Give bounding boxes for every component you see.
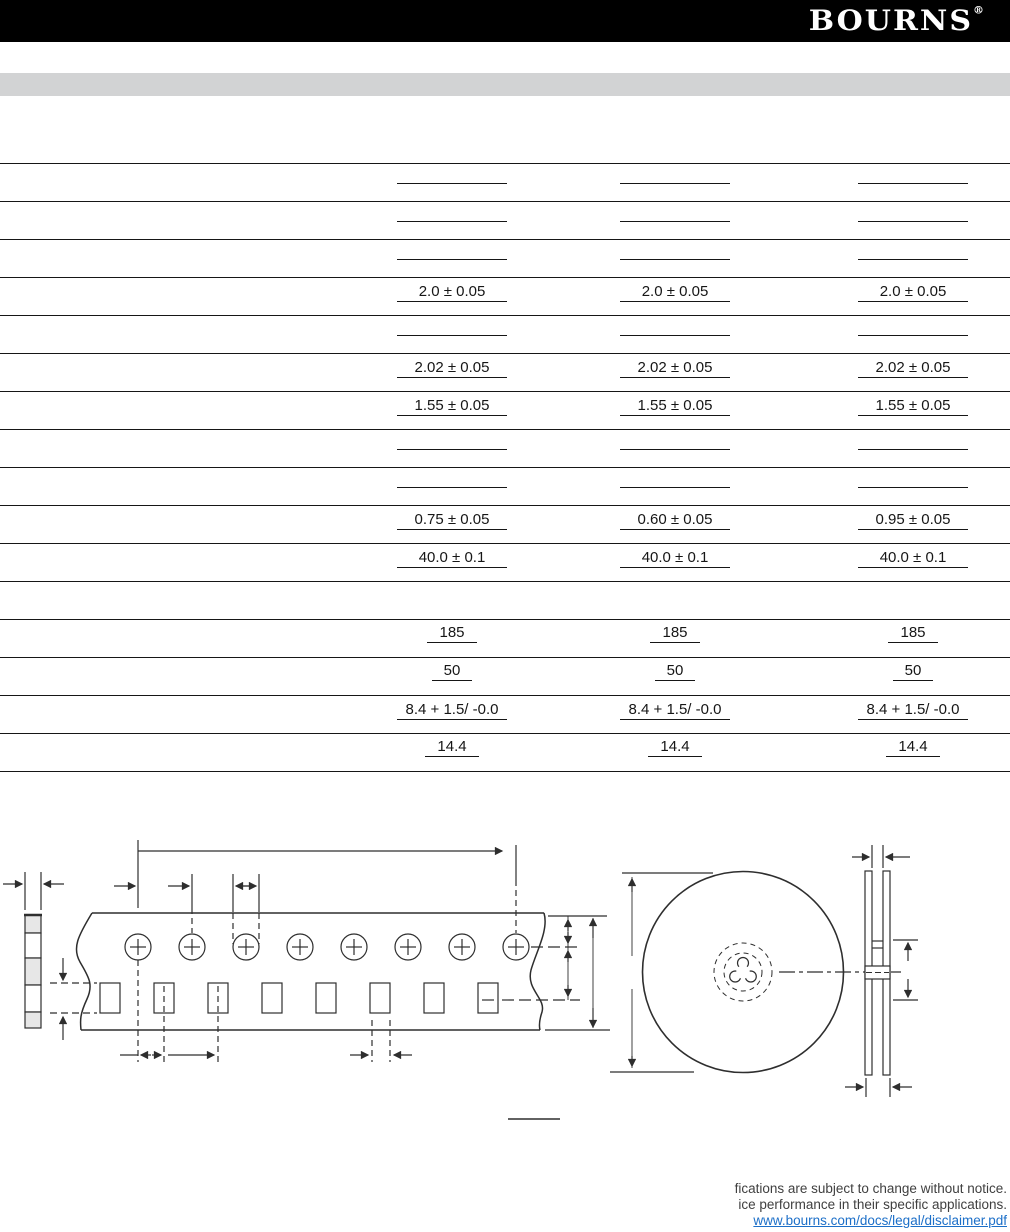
disclaimer-link[interactable]: www.bourns.com/docs/legal/disclaimer.pdf bbox=[753, 1213, 1007, 1228]
tape-dimension-lines bbox=[114, 840, 610, 1062]
tape-front-view bbox=[76, 913, 545, 1030]
footer-notice-line: ice performance in their specific applic… bbox=[735, 1197, 1007, 1213]
footer-notice-line: fications are subject to change without … bbox=[735, 1181, 1007, 1197]
reel-front-view bbox=[610, 872, 901, 1073]
reel-hub-hole bbox=[730, 958, 757, 983]
tape-and-reel-drawing bbox=[0, 0, 1010, 1232]
reel-side-view bbox=[845, 845, 918, 1097]
component-pockets bbox=[100, 983, 498, 1013]
sprocket-holes bbox=[125, 934, 529, 960]
datasheet-page: BOURNS® 2.0 ± 0.05 2.0 ± 0.05 2.0 ± 0.05 bbox=[0, 0, 1010, 1232]
tape-side-view bbox=[3, 872, 97, 1040]
footer: fications are subject to change without … bbox=[735, 1181, 1007, 1229]
